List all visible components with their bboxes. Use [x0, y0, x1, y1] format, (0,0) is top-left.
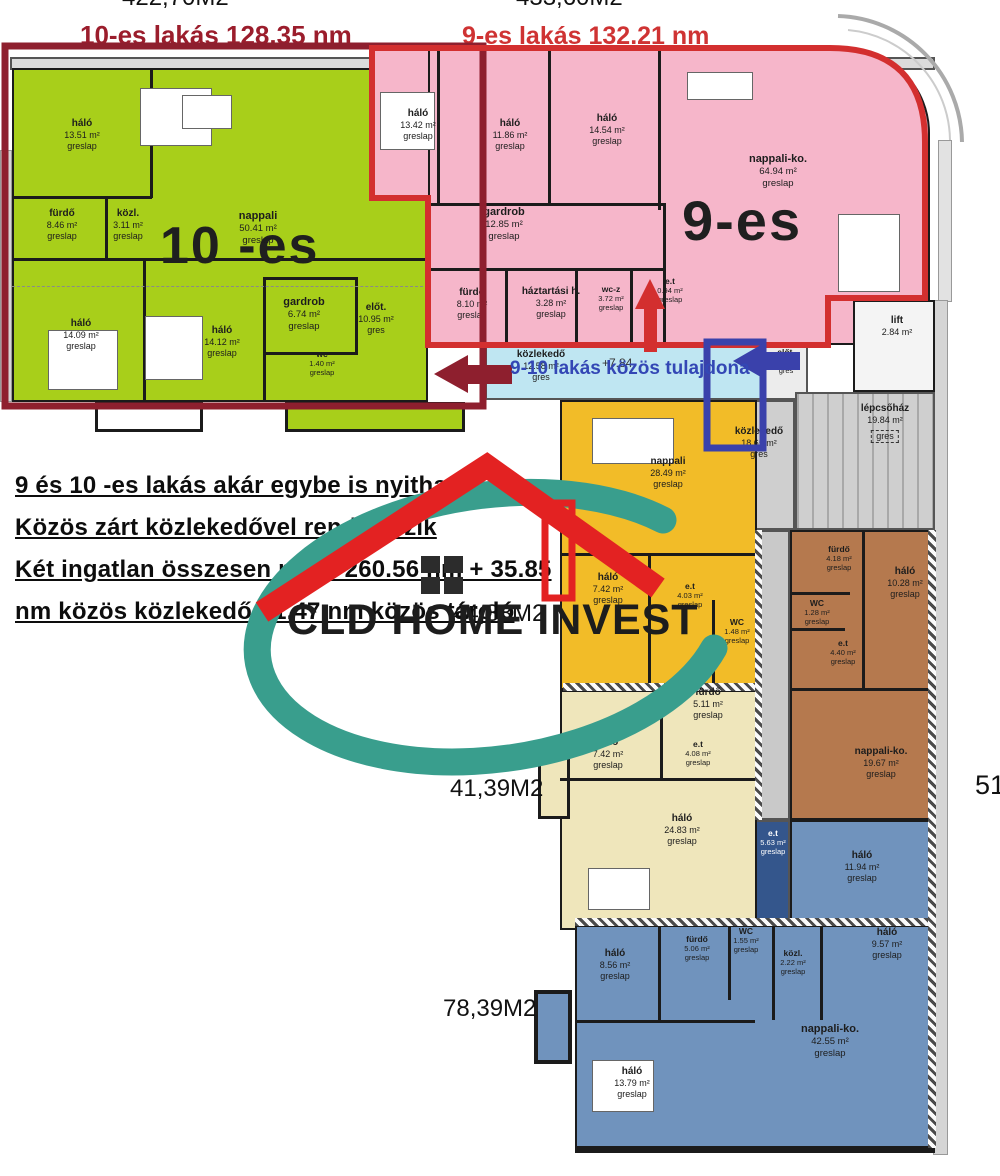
wall: [437, 50, 440, 205]
room-label: nappali-ko.19.67 m²greslap: [855, 746, 908, 780]
lift-room: [853, 300, 935, 392]
top-left-partial-label: 422,70M2: [122, 0, 229, 12]
wall: [862, 530, 865, 690]
top-right-partial-label: 433,60M2: [516, 0, 623, 12]
room-label: fürdő5.06 m²greslap: [684, 934, 709, 962]
wall: [263, 277, 358, 280]
room-label: háló13.51 m²greslap: [64, 118, 100, 152]
annotation-line-1: 9 és 10 -es lakás akár egybe is nyitható: [15, 472, 470, 500]
room-label: háztartási h.3.28 m²greslap: [522, 286, 580, 320]
room-label: előt.10.95 m²gres: [358, 302, 394, 336]
room-label: háló11.86 m²greslap: [493, 118, 528, 152]
furniture-bed: [588, 868, 650, 910]
room-label: wc-z3.72 m²greslap: [598, 284, 623, 312]
wall: [820, 925, 823, 1020]
room-label: lift2.84 m²: [882, 315, 913, 338]
wall: [660, 690, 663, 780]
room-label: fürdő4.18 m²greslap: [826, 544, 851, 572]
room-label: WC1.55 m²greslap: [733, 926, 758, 954]
room-label: nappali50.41 m²greslap: [239, 210, 278, 246]
wall: [263, 277, 266, 402]
room-label: előt.5.14 m²gres: [773, 347, 798, 375]
room-label: e.t4.08 m²greslap: [685, 739, 710, 767]
room-label: WC1.28 m²greslap: [804, 598, 829, 626]
balcony-blue: [534, 990, 572, 1064]
room-label: fürdő5.11 m²greslap: [693, 687, 723, 721]
annotation-line-3: Két ingatlan összesen nettó 260.56 nm + …: [15, 556, 552, 584]
wall: [790, 628, 845, 631]
logo-text: CLD HOME INVEST: [287, 596, 699, 645]
floorplan-canvas: 10-es lakás 128.35 nm 9-es lakás 132.21 …: [0, 0, 1000, 1176]
room-label: közl.3.11 m²greslap: [113, 208, 143, 242]
apt9-big-label: 9-es: [682, 188, 802, 253]
room-label: nappali28.49 m²greslap: [650, 456, 686, 490]
wall: [560, 553, 757, 556]
room-label: fürdő8.46 m²greslap: [47, 208, 78, 242]
apt10-title: 10-es lakás 128.35 nm: [80, 20, 352, 51]
hatch-corridor-left: [755, 530, 762, 820]
wall: [548, 50, 551, 205]
hatch-blue-top: [575, 918, 935, 926]
room-label: nappali-ko.64.94 m²greslap: [749, 153, 807, 189]
hatch-yellow-beige: [563, 683, 757, 691]
furniture-sofa: [687, 72, 753, 100]
wall: [712, 600, 715, 685]
balcony-1: [95, 402, 203, 432]
room-label: e.t0.94 m²greslap: [657, 276, 682, 304]
shared-ownership-banner: 9-10 lakás közös tulajdona: [510, 358, 750, 380]
room-label: háló14.12 m²greslap: [204, 325, 240, 359]
wall: [12, 196, 152, 199]
room-label: lépcsőház19.84 m²gres: [861, 403, 909, 444]
room-label: háló14.09 m²greslap: [63, 318, 99, 352]
wall: [505, 268, 508, 345]
wall: [658, 925, 661, 1020]
room-label: háló14.54 m²greslap: [589, 113, 625, 147]
area-label-blue: 78,39M2: [443, 995, 536, 1023]
room-label: háló24.83 m²greslap: [664, 813, 700, 847]
wall: [630, 268, 633, 345]
room-label: nappali-ko.42.55 m²greslap: [801, 1023, 859, 1059]
room-label: háló13.42 m²greslap: [400, 108, 436, 142]
room-label: háló11.94 m²greslap: [845, 850, 880, 884]
annotation-line-2: Közös zárt közlekedővel rendelkezik: [15, 514, 437, 542]
wall: [575, 1020, 755, 1023]
wall: [663, 203, 666, 345]
room-label: fürdő8.10 m²greslap: [457, 287, 488, 321]
furniture-table: [182, 95, 232, 129]
area-label-right-partial: 51: [975, 770, 1000, 801]
wall: [105, 196, 108, 261]
furniture-dining-table: [838, 214, 900, 292]
room-label: háló10.28 m²greslap: [887, 566, 923, 600]
outer-wall-right-top: [938, 140, 952, 302]
wall: [790, 592, 850, 595]
wall: [772, 925, 775, 1020]
room-label: wc1.40 m²greslap: [309, 349, 334, 377]
balcony-2: [285, 402, 465, 432]
room-label: háló13.79 m²greslap: [614, 1066, 650, 1100]
outer-wall-left: [0, 150, 12, 402]
bottom-wall: [575, 1146, 935, 1153]
wall: [560, 778, 757, 781]
room-label: közl.2.22 m²greslap: [780, 948, 805, 976]
wall: [728, 925, 731, 1000]
room-label: WC1.48 m²greslap: [724, 617, 749, 645]
apt9-title: 9-es lakás 132.21 nm: [462, 22, 709, 51]
room-label: e.t5.63 m²greslap: [760, 828, 785, 856]
wall: [790, 688, 935, 691]
room-label: gardrob12.85 m²greslap: [483, 206, 525, 242]
room-label: háló8.56 m²greslap: [600, 948, 631, 982]
section-line: [12, 286, 428, 287]
room-label: közlekedő18.65 m²gres: [735, 426, 783, 460]
wall: [658, 50, 661, 210]
room-label: háló9.57 m²greslap: [872, 927, 903, 961]
room-label: háló7.42 m²greslap: [593, 737, 624, 771]
furniture-bed: [145, 316, 203, 380]
hatch-right-edge: [928, 530, 936, 1148]
room-label: e.t4.40 m²greslap: [830, 638, 855, 666]
room-label: gardrob6.74 m²greslap: [283, 296, 325, 332]
area-label-beige: 41,39M2: [450, 775, 543, 803]
wall: [430, 203, 663, 206]
